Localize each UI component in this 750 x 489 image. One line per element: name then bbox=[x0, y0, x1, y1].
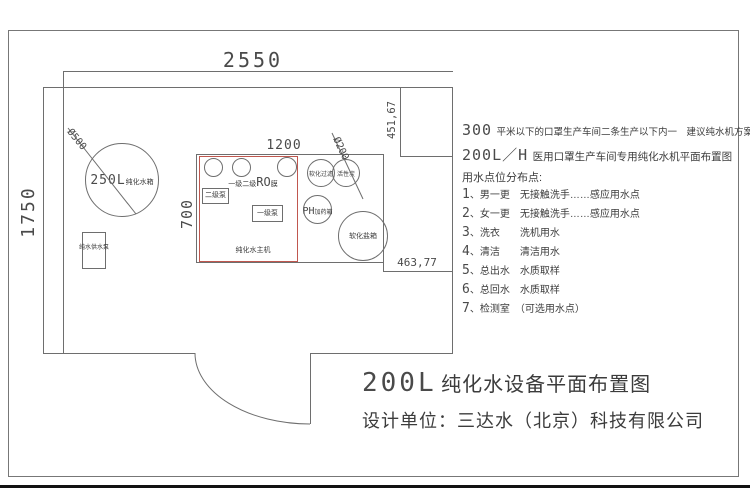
step-line bbox=[383, 271, 453, 272]
note-line-2: 200L／H 医用口罩生产车间专用纯化水机平面布置图 bbox=[462, 144, 732, 165]
dim-line-1750 bbox=[43, 87, 44, 353]
water-tank-circle: 250L纯化水箱 bbox=[85, 143, 159, 217]
wall-bottom-left bbox=[43, 353, 195, 354]
wall-bottom-right bbox=[310, 353, 453, 354]
note-line-1: 300 平米以下的口罩生产车间二条生产以下内一 建议纯水机方案 bbox=[462, 121, 750, 140]
softener-salt-tank-circle: 软化盐箱 bbox=[338, 211, 388, 261]
water-point-item: 3、洗衣 洗机用水 bbox=[462, 223, 560, 241]
closet-left-edge bbox=[400, 88, 401, 156]
dim-text-2550: 2550 bbox=[193, 48, 313, 72]
designer-line: 设计单位：三达水（北京）科技有限公司 bbox=[362, 407, 704, 433]
stage1-pump-box: 一级泵 bbox=[252, 205, 283, 222]
softener-filter-circle: 软化过滤 bbox=[307, 159, 335, 187]
water-point-item: 7、检测室 （可选用水点） bbox=[462, 299, 585, 317]
bottom-edge-line bbox=[0, 485, 750, 488]
drawing-title: 200L 纯化水设备平面布置图 bbox=[362, 368, 651, 398]
water-point-item: 4、清洁 清洁用水 bbox=[462, 242, 560, 260]
dim-text-1200: 1200 bbox=[249, 138, 319, 153]
wall-left bbox=[63, 71, 64, 354]
floor-plan-drawing: 一级二级RO膜 二级泵 一级泵 纯化水主机 软化过滤 活性炭 PH加药箱 软化盐… bbox=[0, 0, 750, 489]
closet-bottom-edge bbox=[400, 156, 453, 157]
notes-heading: 用水点位分布点: bbox=[462, 169, 542, 185]
dim-text-463-77: 463,77 bbox=[377, 256, 457, 269]
dim-text-1750: 1750 bbox=[18, 172, 40, 252]
stage2-pump-box: 二级泵 bbox=[202, 188, 229, 204]
dim-text-700: 700 bbox=[178, 189, 196, 239]
dim-text-451-67: 451,67 bbox=[386, 90, 400, 150]
wall-right bbox=[452, 87, 453, 354]
water-point-item: 6、总回水 水质取样 bbox=[462, 280, 560, 298]
ph-dosing-circle: PH加药箱 bbox=[303, 195, 332, 224]
water-point-item: 5、总出水 水质取样 bbox=[462, 261, 560, 279]
door-leaf bbox=[310, 353, 311, 424]
water-point-item: 2、女一更 无接触洗手……感应用水点 bbox=[462, 204, 640, 222]
wall-top bbox=[43, 87, 453, 88]
water-point-item: 1、男一更 无接触洗手……感应用水点 bbox=[462, 185, 640, 203]
supply-pump-label: 纯水供水泵 bbox=[70, 242, 118, 251]
purifier-host-label: 纯化水主机 bbox=[216, 247, 290, 255]
